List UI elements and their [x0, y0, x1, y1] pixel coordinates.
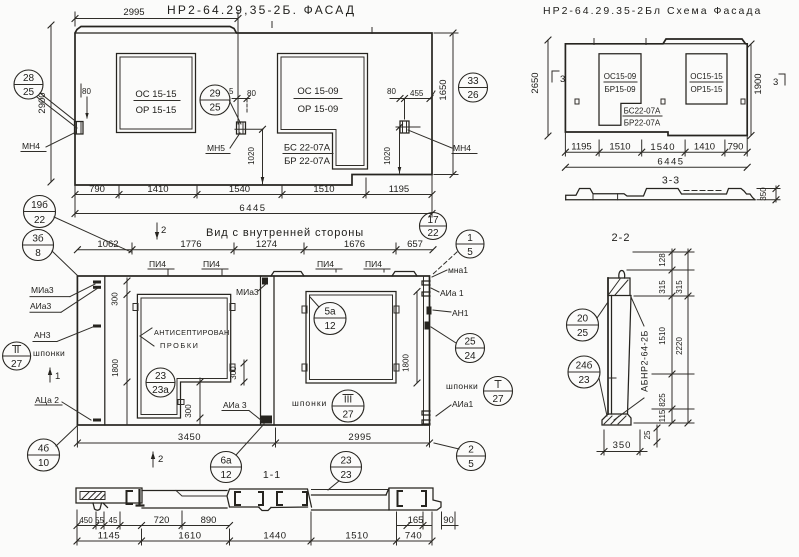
- svg-text:6445: 6445: [239, 203, 266, 214]
- svg-text:НР2-64.29.35-2Бл Схема Фасада: НР2-64.29.35-2Бл Схема Фасада: [543, 5, 762, 17]
- svg-text:825: 825: [658, 393, 667, 407]
- svg-text:90: 90: [443, 515, 454, 526]
- svg-text:128: 128: [658, 253, 667, 267]
- svg-text:мна1: мна1: [448, 265, 468, 275]
- svg-text:1020: 1020: [247, 147, 256, 165]
- svg-text:АИа 1: АИа 1: [440, 288, 464, 298]
- svg-text:ОР15-15: ОР15-15: [690, 85, 723, 94]
- svg-text:17: 17: [427, 215, 439, 226]
- svg-text:АН3: АН3: [34, 330, 51, 340]
- svg-text:1510: 1510: [345, 531, 368, 542]
- svg-text:1510: 1510: [609, 142, 630, 153]
- svg-text:6445: 6445: [657, 157, 684, 168]
- svg-text:19б: 19б: [31, 199, 48, 211]
- svg-text:740: 740: [405, 531, 422, 542]
- svg-text:АИа3: АИа3: [30, 301, 52, 311]
- svg-text:1800: 1800: [111, 359, 120, 377]
- svg-text:25: 25: [577, 328, 589, 339]
- svg-text:1650: 1650: [438, 79, 449, 100]
- svg-text:ОС 15-09: ОС 15-09: [297, 86, 338, 97]
- svg-text:БС 22-07А: БС 22-07А: [284, 143, 331, 154]
- svg-text:1020: 1020: [383, 147, 392, 165]
- svg-text:шпонки: шпонки: [33, 348, 65, 358]
- svg-text:3: 3: [560, 74, 565, 85]
- svg-text:300: 300: [111, 292, 120, 306]
- svg-text:80: 80: [387, 87, 396, 96]
- svg-text:2220: 2220: [675, 337, 684, 355]
- svg-text:2: 2: [161, 225, 166, 236]
- svg-text:МН5: МН5: [207, 143, 225, 153]
- svg-text:45: 45: [109, 516, 118, 525]
- svg-text:2900: 2900: [37, 92, 48, 113]
- svg-text:1: 1: [55, 371, 60, 382]
- svg-text:315: 315: [658, 280, 667, 294]
- svg-text:Вид с внутренней стороны: Вид с внутренней стороны: [206, 227, 364, 239]
- svg-text:ПРОБКИ: ПРОБКИ: [160, 341, 200, 350]
- svg-text:ПИ4: ПИ4: [203, 259, 220, 269]
- svg-text:ОС15-09: ОС15-09: [604, 72, 637, 81]
- svg-text:4б: 4б: [38, 443, 50, 455]
- svg-text:1410: 1410: [147, 184, 168, 195]
- svg-text:АН1: АН1: [452, 308, 469, 318]
- svg-text:23: 23: [340, 470, 352, 481]
- svg-text:315: 315: [675, 280, 684, 294]
- svg-text:БС22-07А: БС22-07А: [624, 107, 661, 116]
- svg-text:БР15-09: БР15-09: [604, 85, 636, 94]
- svg-text:шпонки: шпонки: [446, 381, 478, 391]
- svg-text:657: 657: [407, 239, 423, 250]
- svg-text:165: 165: [408, 515, 424, 526]
- svg-text:25: 25: [464, 337, 476, 348]
- svg-text:25: 25: [23, 87, 35, 98]
- svg-text:1: 1: [467, 233, 473, 244]
- svg-text:МН4: МН4: [453, 143, 471, 153]
- svg-text:2650: 2650: [530, 72, 541, 93]
- svg-text:2995: 2995: [348, 432, 371, 443]
- svg-text:3-3: 3-3: [662, 175, 680, 187]
- svg-text:8: 8: [35, 248, 41, 259]
- svg-text:5а: 5а: [324, 307, 336, 318]
- svg-text:1510: 1510: [313, 184, 334, 195]
- svg-text:3450: 3450: [178, 432, 201, 443]
- svg-text:1145: 1145: [98, 531, 120, 542]
- svg-text:25: 25: [209, 103, 221, 114]
- svg-text:I: I: [497, 380, 500, 391]
- svg-text:80: 80: [82, 87, 91, 96]
- svg-text:10: 10: [38, 458, 50, 469]
- svg-text:27: 27: [492, 394, 504, 405]
- svg-text:1510: 1510: [658, 327, 667, 345]
- svg-text:ОР 15-15: ОР 15-15: [136, 105, 177, 116]
- svg-text:5: 5: [467, 247, 473, 258]
- svg-text:НР2-64.29,35-2Б. ФАСАД: НР2-64.29,35-2Б. ФАСАД: [167, 3, 356, 17]
- svg-text:1195: 1195: [389, 184, 409, 195]
- svg-text:1-1: 1-1: [263, 469, 281, 481]
- svg-text:455: 455: [410, 89, 424, 98]
- svg-text:55: 55: [95, 516, 104, 525]
- svg-text:6а: 6а: [220, 456, 232, 467]
- svg-text:МИа3: МИа3: [31, 285, 54, 295]
- svg-text:III: III: [344, 395, 352, 406]
- svg-text:25: 25: [643, 430, 652, 439]
- svg-text:1410: 1410: [694, 142, 715, 153]
- svg-text:ОР 15-09: ОР 15-09: [298, 104, 339, 115]
- svg-text:1274: 1274: [256, 239, 277, 250]
- svg-text:ОС15-15: ОС15-15: [690, 72, 723, 81]
- svg-text:24: 24: [464, 351, 476, 362]
- svg-text:1676: 1676: [344, 239, 365, 250]
- svg-text:450: 450: [79, 516, 93, 525]
- svg-text:26: 26: [467, 90, 479, 101]
- svg-text:22: 22: [34, 215, 46, 226]
- svg-text:20: 20: [577, 314, 589, 325]
- svg-text:24б: 24б: [576, 360, 593, 372]
- svg-text:МН4: МН4: [22, 141, 40, 151]
- svg-text:ОС 15-15: ОС 15-15: [135, 89, 176, 100]
- svg-text:БР 22-07А: БР 22-07А: [284, 156, 331, 167]
- svg-text:II: II: [14, 345, 20, 356]
- svg-text:5: 5: [229, 87, 234, 96]
- svg-text:23: 23: [340, 456, 352, 467]
- svg-text:АБНР2-64-2Б: АБНР2-64-2Б: [640, 330, 650, 392]
- svg-text:350: 350: [759, 187, 768, 201]
- svg-text:350: 350: [613, 440, 632, 451]
- svg-text:1776: 1776: [180, 239, 201, 250]
- svg-text:1800: 1800: [402, 354, 411, 372]
- svg-text:27: 27: [11, 359, 23, 370]
- svg-text:790: 790: [89, 184, 105, 195]
- svg-text:23а: 23а: [152, 385, 169, 396]
- svg-text:АИа 3: АИа 3: [223, 400, 247, 410]
- svg-text:29: 29: [209, 89, 221, 100]
- svg-text:22: 22: [427, 228, 439, 239]
- svg-text:АИа1: АИа1: [452, 399, 474, 409]
- svg-text:ПИ4: ПИ4: [317, 259, 334, 269]
- svg-text:5: 5: [468, 459, 474, 470]
- svg-text:300: 300: [184, 404, 193, 418]
- svg-text:23: 23: [155, 371, 167, 382]
- svg-text:1440: 1440: [263, 531, 286, 542]
- svg-text:ПИ4: ПИ4: [149, 259, 166, 269]
- svg-text:1610: 1610: [178, 531, 201, 542]
- svg-text:115: 115: [658, 409, 667, 422]
- svg-text:1195: 1195: [571, 142, 591, 153]
- svg-text:1540: 1540: [650, 142, 675, 153]
- svg-text:2: 2: [158, 454, 163, 465]
- svg-text:1900: 1900: [753, 73, 764, 94]
- svg-text:790: 790: [728, 142, 744, 153]
- svg-text:12: 12: [324, 321, 336, 332]
- svg-text:АНТИСЕПТИРОВАН: АНТИСЕПТИРОВАН: [154, 328, 230, 337]
- svg-text:шпонки: шпонки: [292, 398, 327, 408]
- svg-text:3: 3: [773, 77, 778, 88]
- svg-text:ПИ4: ПИ4: [365, 259, 382, 269]
- svg-text:23: 23: [578, 375, 590, 386]
- svg-text:2: 2: [468, 445, 474, 456]
- svg-text:300: 300: [229, 366, 238, 380]
- svg-text:720: 720: [154, 515, 170, 526]
- svg-text:МИа3: МИа3: [236, 287, 259, 297]
- svg-text:12: 12: [220, 470, 232, 481]
- svg-text:3б: 3б: [32, 233, 44, 245]
- svg-text:2995: 2995: [123, 7, 144, 18]
- svg-text:890: 890: [201, 515, 217, 526]
- svg-text:28: 28: [23, 73, 35, 84]
- svg-text:БР22-07А: БР22-07А: [624, 119, 661, 128]
- svg-text:33: 33: [467, 76, 479, 87]
- svg-text:1540: 1540: [229, 184, 250, 195]
- svg-text:АЦа 2: АЦа 2: [35, 395, 59, 405]
- svg-text:2-2: 2-2: [612, 232, 631, 244]
- svg-text:27: 27: [342, 410, 354, 421]
